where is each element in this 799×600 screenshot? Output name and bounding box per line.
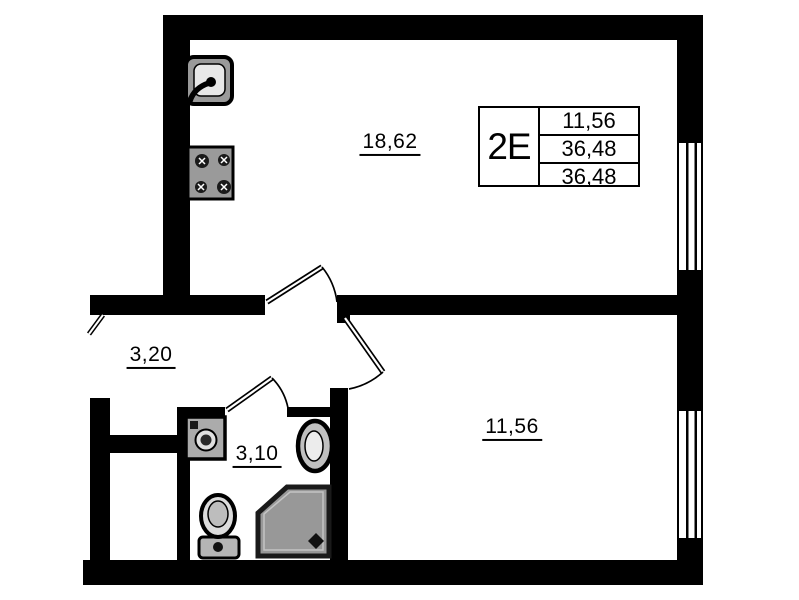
- unit-info-box: 2E 11,56 36,48 36,48: [478, 106, 640, 187]
- window-glass-line: [677, 143, 679, 270]
- floor-plan: 18,62 3,20 3,10 11,56 2E 11,56 36,48 36,…: [0, 0, 799, 600]
- washer-drum-center: [201, 435, 212, 446]
- stove-icon: [188, 147, 233, 199]
- room-label-hallway: 3,20: [127, 343, 176, 369]
- toilet-icon: [199, 495, 239, 558]
- wall-right-middle: [677, 270, 703, 411]
- walls: [83, 15, 703, 585]
- window-opening: [677, 411, 703, 538]
- toilet-bowl-inner: [208, 501, 228, 527]
- wash-basin-icon: [298, 421, 332, 471]
- wall-lower-left: [90, 398, 110, 585]
- window-upper-right: [677, 143, 703, 270]
- room-label-bathroom: 3,10: [233, 442, 282, 468]
- toilet-button: [213, 542, 223, 552]
- door-arc: [349, 372, 383, 389]
- door-entry: [89, 315, 103, 334]
- floor-plan-drawing: [0, 0, 799, 600]
- door-arc: [272, 378, 288, 408]
- door-leaf-core: [89, 315, 103, 334]
- unit-area-value-3: 36,48: [540, 164, 638, 190]
- wall-top: [163, 15, 703, 40]
- door-room: [345, 318, 383, 389]
- unit-area-value-2: 36,48: [540, 136, 638, 164]
- room-label-living-kitchen: 18,62: [359, 130, 420, 156]
- wall-middle-left: [90, 295, 265, 315]
- door-leaf-core: [227, 378, 272, 410]
- wall-middle-right: [337, 295, 677, 315]
- window-glass-line: [695, 143, 698, 270]
- window-glass-line: [701, 411, 703, 538]
- washer-drawer: [190, 421, 198, 429]
- wall-niche-bar: [110, 435, 188, 453]
- window-glass-line: [695, 411, 698, 538]
- door-arc: [322, 267, 337, 302]
- shower-icon: [258, 487, 329, 556]
- door-leaf-core: [345, 318, 383, 372]
- basin-inner: [305, 431, 323, 461]
- kitchen-sink-icon: [186, 57, 232, 104]
- unit-area-values: 11,56 36,48 36,48: [540, 108, 638, 185]
- unit-type-label: 2E: [480, 108, 540, 185]
- wall-bottom: [83, 560, 703, 585]
- window-glass-line: [686, 143, 689, 270]
- wall-right-upper: [677, 15, 703, 143]
- window-opening: [677, 143, 703, 270]
- unit-area-value-1: 11,56: [540, 108, 638, 136]
- door-leaf-core: [267, 267, 322, 302]
- wall-room-left: [330, 388, 348, 585]
- sink-faucet-head: [206, 77, 216, 87]
- door-living-room: [267, 267, 337, 302]
- window-glass-line: [701, 143, 703, 270]
- window-glass-line: [677, 411, 679, 538]
- window-lower-right: [677, 411, 703, 538]
- window-glass-line: [686, 411, 689, 538]
- door-bathroom: [227, 378, 288, 410]
- room-label-room: 11,56: [482, 415, 542, 441]
- washing-machine-icon: [186, 417, 225, 459]
- wall-bathroom-top-2: [287, 407, 330, 417]
